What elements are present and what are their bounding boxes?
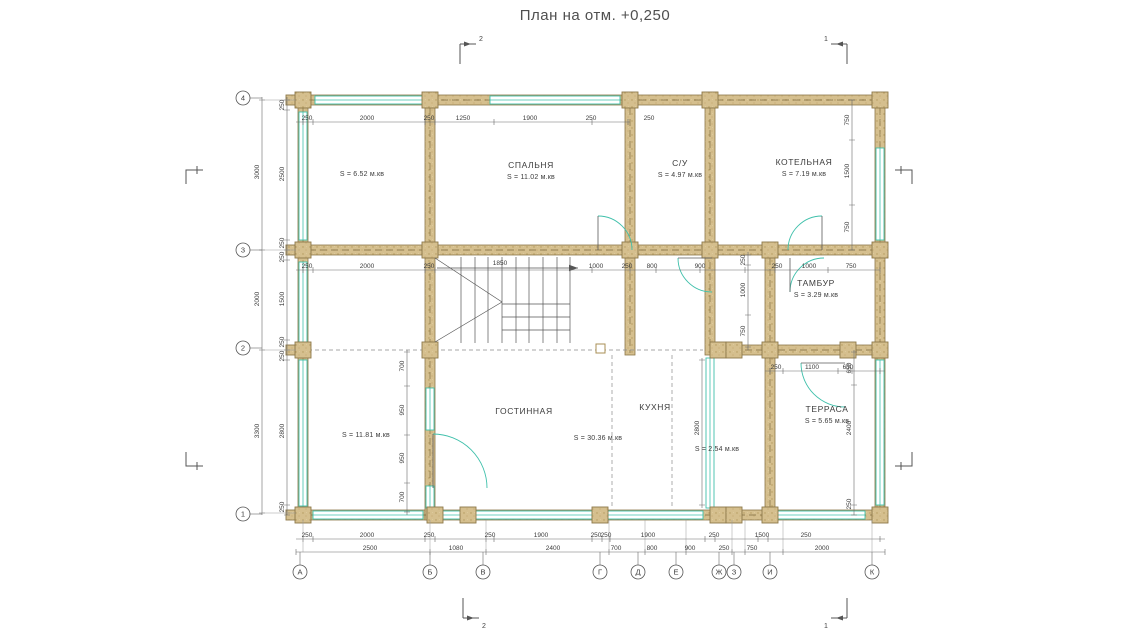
- column: [295, 92, 311, 108]
- room-area: S = 7.19 м.кв: [782, 171, 826, 178]
- axis-label: Д: [635, 568, 640, 577]
- dimension-label: 2400: [546, 545, 561, 552]
- dimension-label: 1900: [534, 532, 549, 539]
- column: [295, 342, 311, 358]
- dimension-label: 1500: [755, 532, 770, 539]
- column: [622, 242, 638, 258]
- dimension-label: 1900: [523, 115, 538, 122]
- column: [710, 507, 726, 523]
- dimension-label: 1000: [740, 282, 747, 297]
- column: [726, 342, 742, 358]
- dimension-label: 950: [399, 452, 406, 463]
- section-mark-arrow: [836, 616, 843, 621]
- room-name: ТЕРРАСА: [806, 404, 849, 414]
- column: [702, 242, 718, 258]
- room-area: S = 4.97 м.кв: [658, 172, 702, 179]
- section-marks: 2121: [460, 36, 847, 630]
- dimension-label: 2000: [815, 545, 830, 552]
- axis-label: Е: [673, 568, 678, 577]
- dimension-label: 700: [399, 360, 406, 371]
- dimension-label: 1500: [279, 291, 286, 306]
- section-mark-label: 1: [824, 36, 828, 43]
- dimension-label: 2500: [363, 545, 378, 552]
- section-mark-arrow: [467, 616, 474, 621]
- column: [872, 242, 888, 258]
- column: [460, 507, 476, 523]
- dimension-label: 3000: [254, 164, 261, 179]
- section-mark-arrow: [464, 42, 471, 47]
- column: [427, 507, 443, 523]
- dimension-label: 700: [611, 545, 622, 552]
- dimension-label: 250: [485, 532, 496, 539]
- room-name: С/У: [672, 158, 688, 168]
- section-hook-right-lower: [895, 452, 912, 470]
- room-area: S = 5.65 м.кв: [805, 418, 849, 425]
- column: [422, 242, 438, 258]
- axis-label: К: [870, 568, 875, 577]
- dimension-label: 800: [647, 545, 658, 552]
- dimension-label: 1100: [805, 364, 819, 371]
- column: [872, 507, 888, 523]
- dimension-label: 250: [601, 532, 612, 539]
- dimension-label: 1000: [802, 263, 817, 270]
- section-hook-right-upper: [895, 166, 912, 184]
- dimension-label: 250: [772, 263, 783, 270]
- dimension-label: 2000: [254, 291, 261, 306]
- dimension-label: 1080: [449, 545, 464, 552]
- column: [872, 92, 888, 108]
- axis-label: Ж: [716, 568, 723, 577]
- column: [592, 507, 608, 523]
- room-name: КОТЕЛЬНАЯ: [776, 157, 833, 167]
- dimension-label: 250: [709, 532, 720, 539]
- column: [762, 342, 778, 358]
- column: [726, 507, 742, 523]
- dimension-label: 700: [399, 491, 406, 502]
- kitchen-dashed-lines: [612, 355, 672, 508]
- dimension-label: 250: [279, 237, 286, 248]
- dimension-label: 1000: [589, 263, 604, 270]
- section-hook-left-upper: [186, 166, 203, 184]
- column: [622, 92, 638, 108]
- column: [762, 242, 778, 258]
- axis-label: 4: [241, 94, 245, 103]
- dimension-label: 250: [586, 115, 597, 122]
- dimension-label: 250: [622, 263, 633, 270]
- axis-label: З: [732, 568, 737, 577]
- column: [840, 342, 856, 358]
- room-name: ГОСТИННАЯ: [495, 406, 552, 416]
- room-name: СПАЛЬНЯ: [508, 160, 554, 170]
- dimension-label: 250: [424, 263, 435, 270]
- post-marker: [596, 344, 605, 353]
- column: [762, 507, 778, 523]
- dimension-label: 650: [846, 362, 853, 373]
- section-mark-label: 1: [824, 623, 828, 630]
- section-mark-label: 2: [479, 36, 483, 43]
- dimension-label: 250: [279, 350, 286, 361]
- room-area: S = 6.52 м.кв: [340, 171, 384, 178]
- column: [702, 92, 718, 108]
- dimension-label: 250: [771, 364, 782, 371]
- dimension-label: 1850: [493, 260, 508, 267]
- axis-label: А: [297, 568, 302, 577]
- axis-label: 2: [241, 344, 245, 353]
- dimension-label: 750: [740, 325, 747, 336]
- axis-label: И: [767, 568, 772, 577]
- column: [872, 342, 888, 358]
- dimension-label: 250: [302, 532, 313, 539]
- axis-label: Г: [598, 568, 602, 577]
- dimension-label: 250: [424, 115, 435, 122]
- dimension-label: 250: [279, 99, 286, 110]
- dimension-label: 2500: [279, 166, 286, 181]
- room-area: S = 30.36 м.кв: [574, 435, 623, 442]
- dimension-label: 250: [846, 498, 853, 509]
- axis-label: 3: [241, 246, 245, 255]
- room-name: КУХНЯ: [639, 402, 670, 412]
- floor-plan-drawing: План на отм. +0,250: [0, 0, 1140, 640]
- room-area: S = 11.81 м.кв: [342, 432, 390, 439]
- axis-label: В: [480, 568, 485, 577]
- dimension-label: 900: [695, 263, 706, 270]
- dimension-label: 250: [279, 336, 286, 347]
- dimension-label: 250: [801, 532, 812, 539]
- dimension-label: 750: [747, 545, 758, 552]
- dimension-label: 750: [846, 263, 857, 270]
- dimension-label: 250: [740, 254, 747, 265]
- drawing-title: План на отм. +0,250: [520, 7, 670, 24]
- section-mark-arrow: [836, 42, 843, 47]
- door-arc-livingroom: [433, 434, 487, 488]
- column: [710, 342, 726, 358]
- dimension-label: 2000: [360, 115, 375, 122]
- dimension-label: 800: [647, 263, 658, 270]
- dimension-label: 950: [399, 404, 406, 415]
- dimension-label: 1500: [844, 163, 851, 178]
- room-area: S = 2.54 м.кв: [695, 446, 739, 453]
- dimension-label: 2800: [279, 423, 286, 438]
- room-name: ТАМБУР: [797, 278, 835, 288]
- dimension-label: 250: [279, 501, 286, 512]
- dimension-label: 250: [302, 263, 313, 270]
- column: [422, 342, 438, 358]
- dimension-label: 250: [644, 115, 655, 122]
- dimension-label: 750: [844, 221, 851, 232]
- column: [422, 92, 438, 108]
- dimension-label: 1250: [456, 115, 471, 122]
- dimension-label: 900: [685, 545, 696, 552]
- column: [295, 242, 311, 258]
- dimension-label: 2000: [360, 263, 375, 270]
- dimension-label: 2000: [360, 532, 375, 539]
- dimension-label: 750: [844, 114, 851, 125]
- dimension-label: 250: [719, 545, 730, 552]
- section-mark-label: 2: [482, 623, 486, 630]
- dimension-label: 250: [302, 115, 313, 122]
- room-area: S = 11.02 м.кв: [507, 174, 555, 181]
- dimension-label: 250: [279, 251, 286, 262]
- axis-label: Б: [428, 568, 433, 577]
- dimension-label: 250: [424, 532, 435, 539]
- dimension-label: 2800: [694, 420, 701, 435]
- section-hooks: [186, 166, 912, 470]
- section-hook-left-lower: [186, 452, 203, 470]
- dimension-label: 3300: [254, 423, 261, 438]
- dimension-label: 1900: [641, 532, 656, 539]
- axis-label: 1: [241, 510, 245, 519]
- room-area: S = 3.29 м.кв: [794, 292, 838, 299]
